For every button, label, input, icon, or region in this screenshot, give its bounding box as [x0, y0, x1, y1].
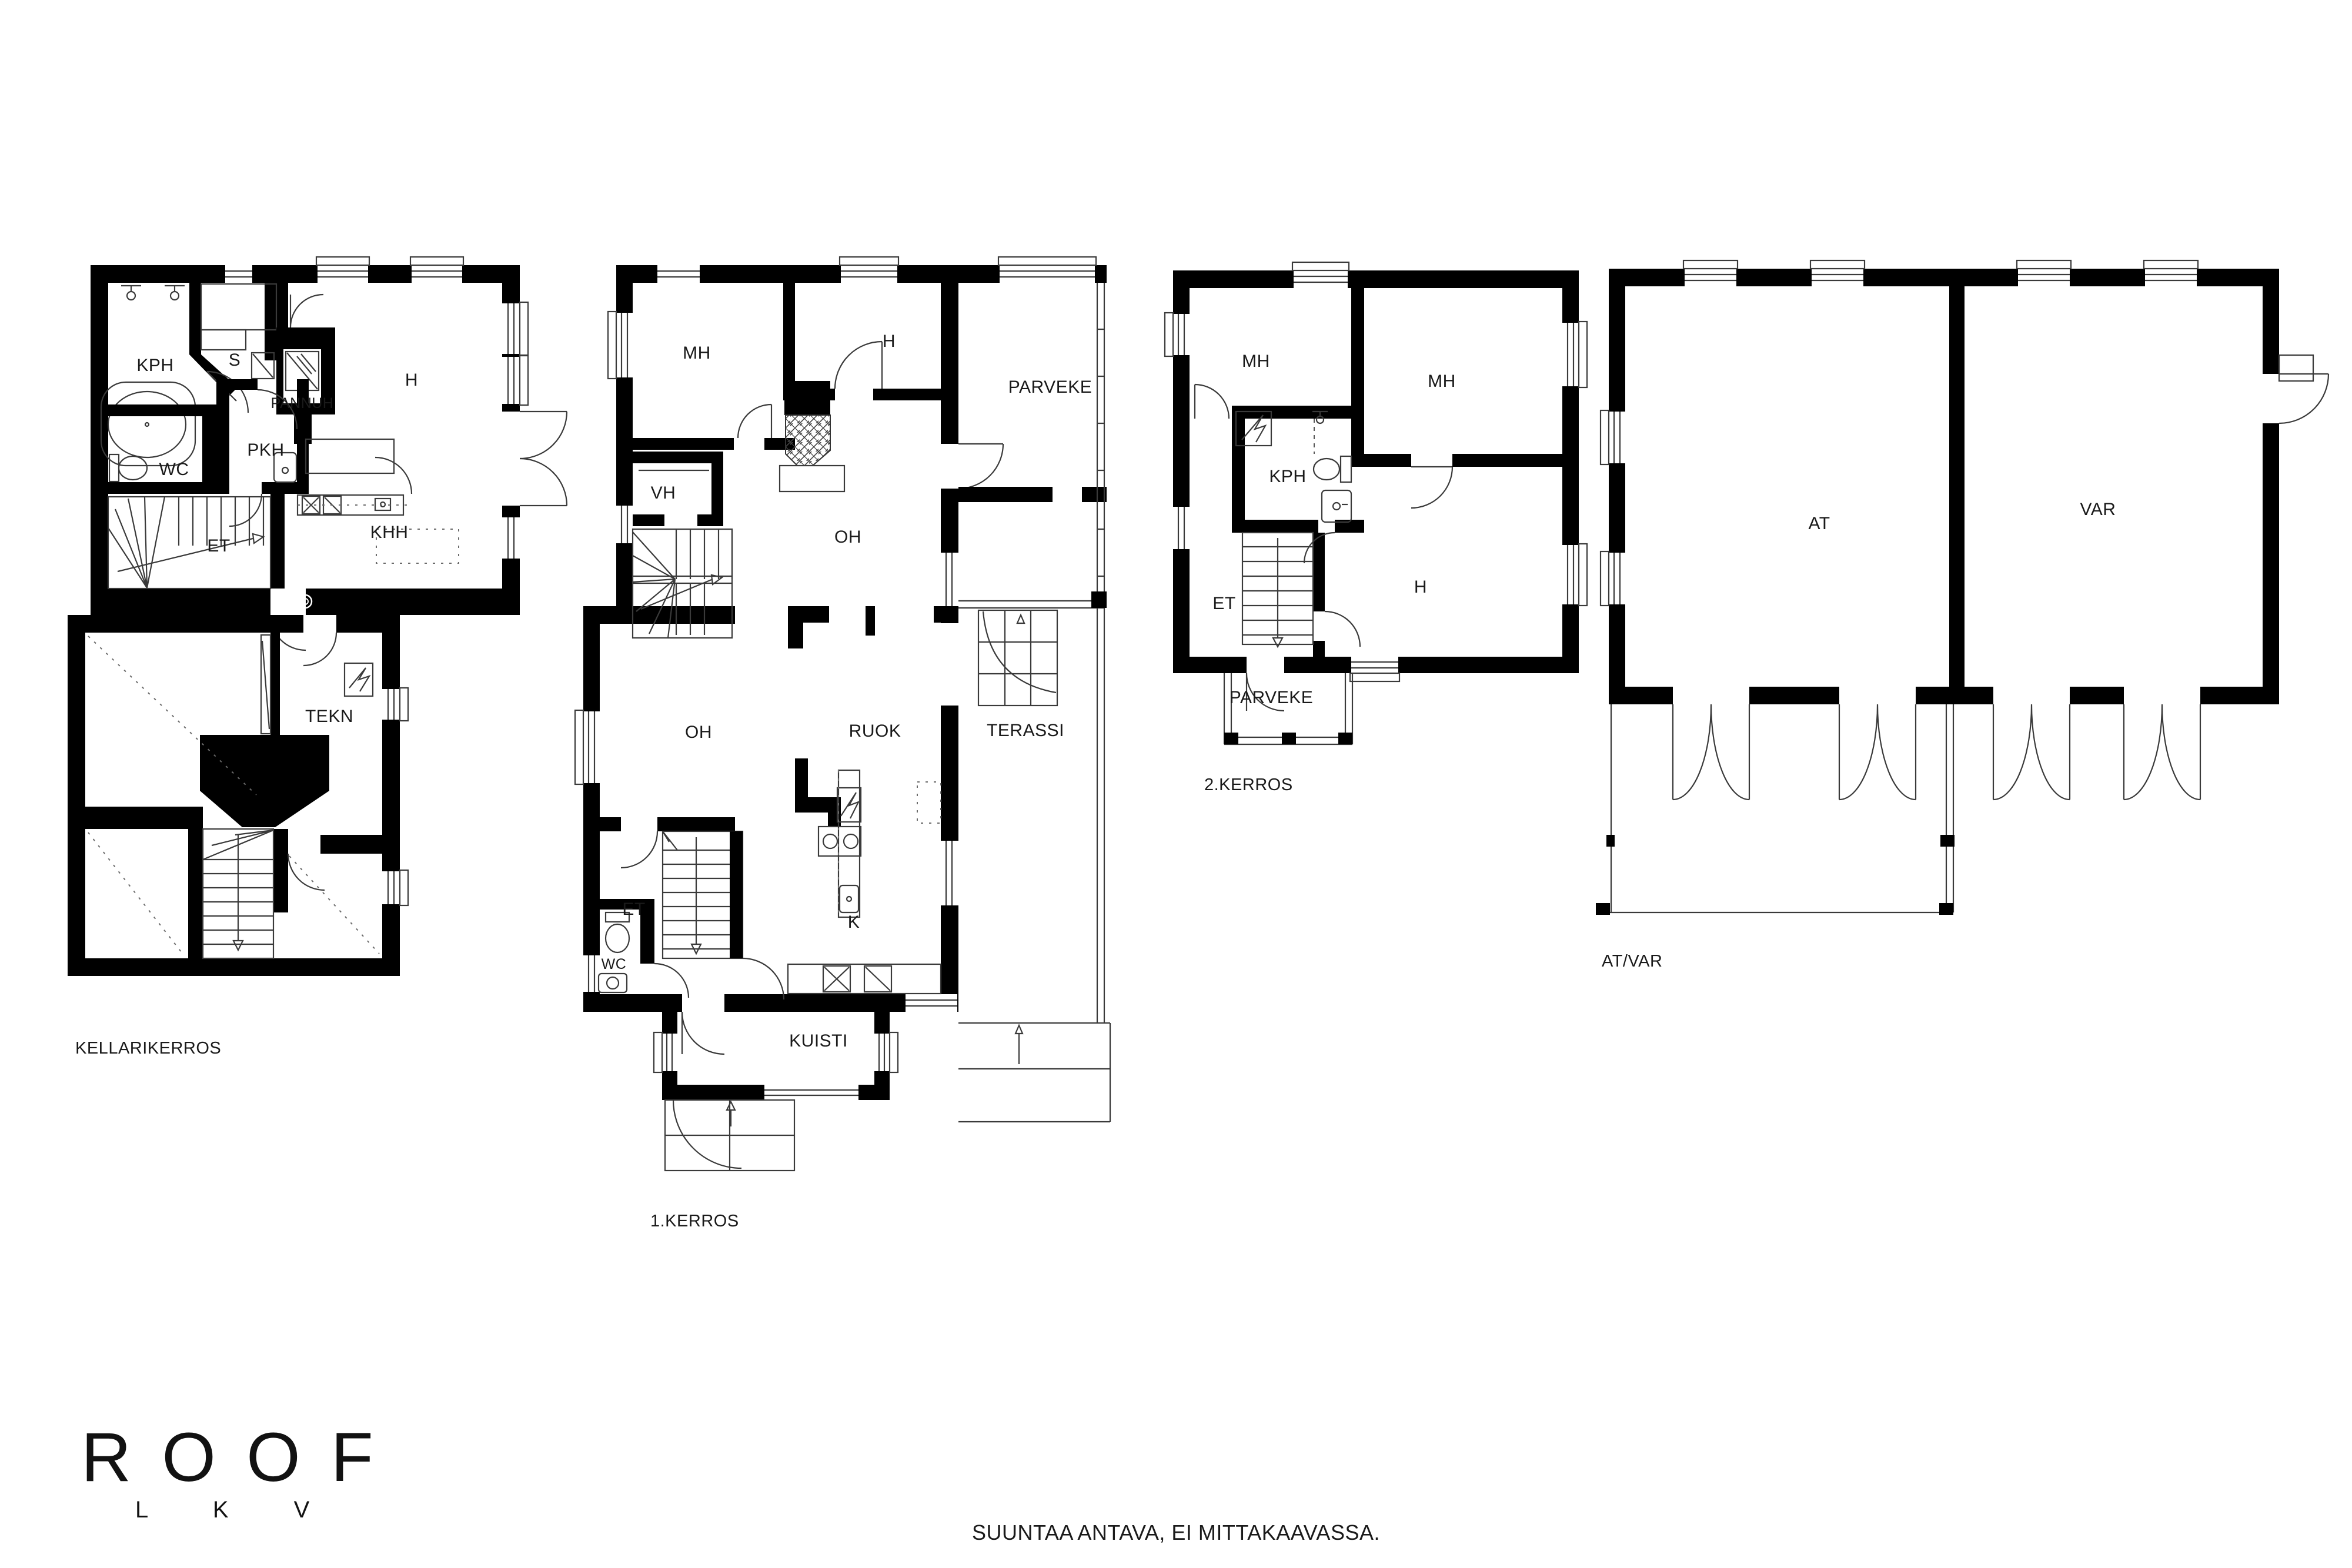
room-label-mh-right: MH: [1428, 372, 1456, 391]
caption-2kerros: 2.KERROS: [1204, 775, 1293, 794]
floorplan-2kerros: MH MH KPH ET H PARVEKE 2.KERROS: [1165, 262, 1587, 794]
caption-at-var: AT/VAR: [1602, 952, 1662, 971]
room-label-tekn: TEKN: [305, 707, 353, 726]
room-label-kph: KPH: [136, 356, 173, 375]
floorplan-kellarikerros: KPH S PANNUH H WC PKH ET KHH TEKN KELLAR…: [68, 257, 567, 1058]
room-label-s: S: [229, 350, 241, 370]
floorplan-at-var: AT VAR AT/VAR: [1596, 260, 2328, 971]
floorplan-1kerros: MH H VH OH PARVEKE OH RUOK TERASSI ET K …: [575, 257, 1110, 1231]
room-label-var: VAR: [2080, 500, 2116, 519]
room-label-oh: OH: [685, 723, 712, 742]
caption-1kerros: 1.KERROS: [650, 1212, 739, 1231]
floorplan-canvas: KPH S PANNUH H WC PKH ET KHH TEKN KELLAR…: [0, 0, 2352, 1568]
room-label-pannuh: PANNUH: [271, 395, 334, 412]
room-label-pkh: PKH: [247, 440, 284, 460]
room-label-mh-left: MH: [1242, 352, 1270, 371]
room-label-kph: KPH: [1269, 467, 1306, 486]
room-label-khh: KHH: [370, 523, 409, 542]
disclaimer-note: SUUNTAA ANTAVA, EI MITTAKAAVASSA.: [0, 1520, 2352, 1545]
room-label-kuisti: KUISTI: [789, 1031, 848, 1051]
room-label-wc: WC: [159, 460, 189, 479]
room-label-oh-upper: OH: [834, 527, 861, 547]
room-label-wc: WC: [602, 956, 627, 972]
room-label-et: ET: [1212, 594, 1235, 613]
room-label-terassi: TERASSI: [987, 721, 1064, 740]
room-label-h: H: [405, 370, 418, 390]
room-label-et: ET: [207, 536, 230, 556]
logo-sub-text: L K V: [135, 1497, 339, 1523]
logo-brand-text: ROOF: [81, 1423, 404, 1492]
room-label-at: AT: [1808, 514, 1830, 533]
room-label-h: H: [883, 332, 896, 351]
room-label-et: ET: [622, 900, 645, 919]
room-label-mh: MH: [683, 343, 711, 363]
room-label-parveke: PARVEKE: [1230, 688, 1313, 707]
caption-kellarikerros: KELLARIKERROS: [75, 1039, 221, 1058]
room-label-ruok: RUOK: [849, 721, 901, 741]
floorplan-sheet: KPH S PANNUH H WC PKH ET KHH TEKN KELLAR…: [0, 0, 2352, 1568]
room-label-parveke: PARVEKE: [1008, 377, 1092, 397]
roof-lkv-logo: ROOF L K V: [81, 1423, 404, 1492]
room-label-h: H: [1414, 577, 1427, 597]
room-label-k: K: [848, 912, 860, 932]
room-label-vh: VH: [651, 483, 676, 503]
